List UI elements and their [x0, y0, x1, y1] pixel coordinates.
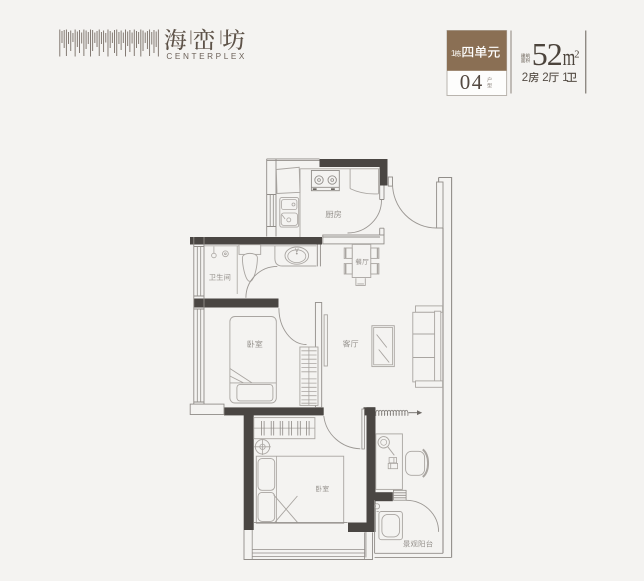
svg-text:04: 04 — [460, 70, 484, 94]
svg-text:2: 2 — [542, 72, 548, 84]
svg-text:2: 2 — [522, 72, 528, 84]
svg-text:1: 1 — [451, 48, 456, 58]
svg-text:52: 52 — [532, 36, 562, 72]
svg-text:CENTERPLEX: CENTERPLEX — [166, 52, 247, 61]
svg-text:2: 2 — [574, 50, 579, 61]
svg-text:1: 1 — [562, 72, 568, 84]
